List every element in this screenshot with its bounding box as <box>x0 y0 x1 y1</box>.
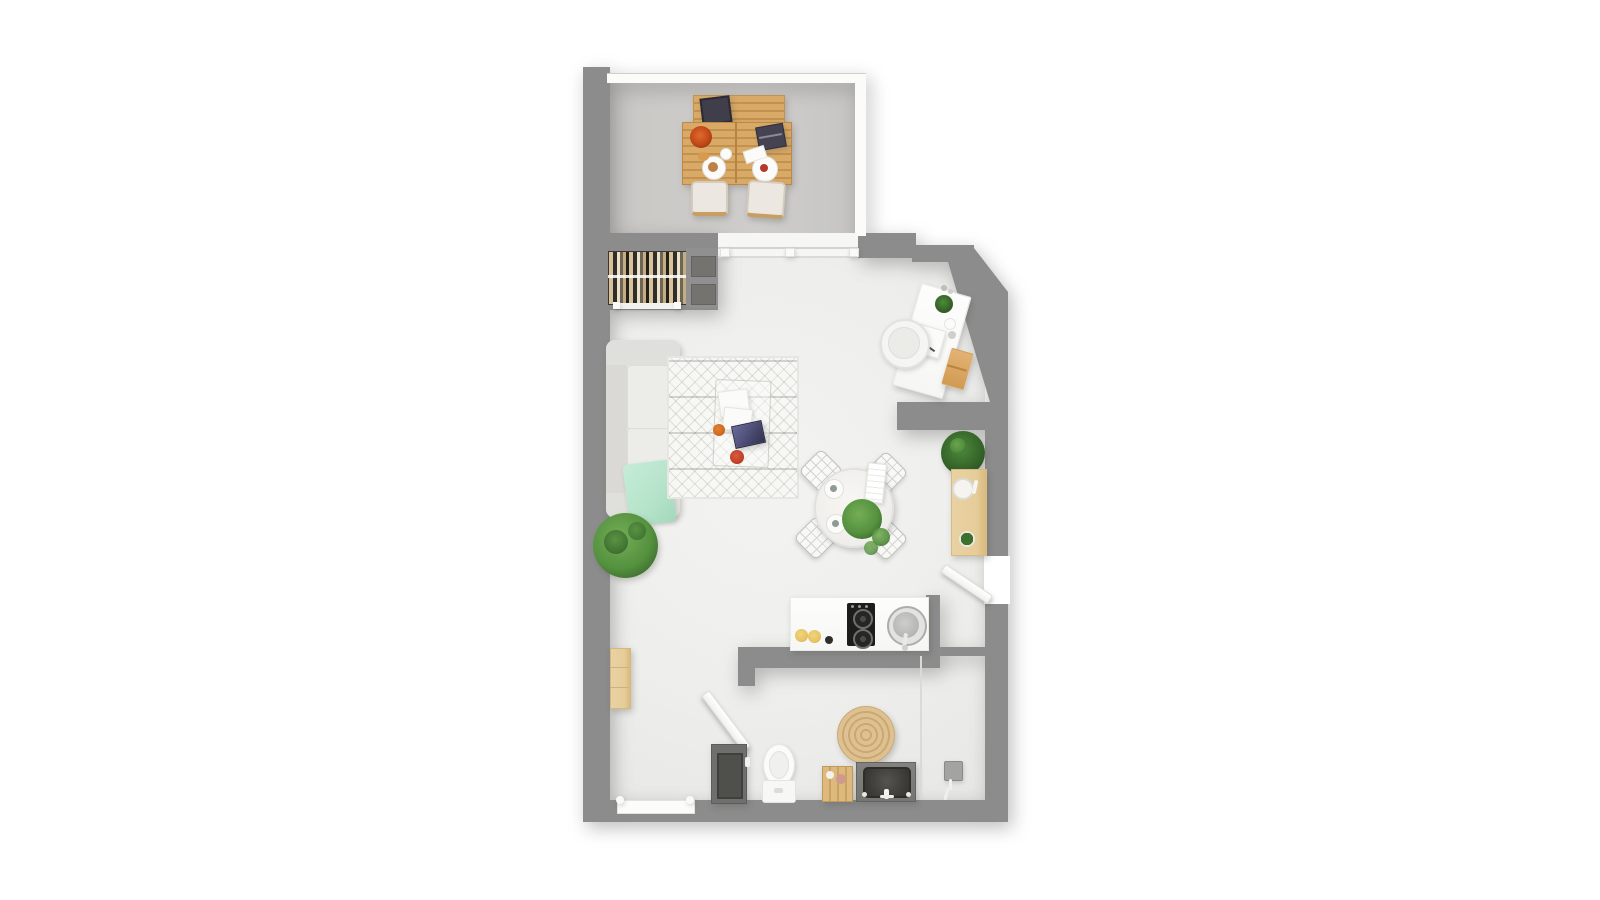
shower-hose <box>949 779 952 790</box>
desk-plant <box>935 295 953 313</box>
hallway-plant-highlight <box>950 438 966 454</box>
red-plant <box>690 126 712 148</box>
cooktop-control <box>865 605 868 608</box>
cooktop-control <box>851 605 854 608</box>
desk-mug <box>944 318 956 330</box>
outdoor-chair <box>691 181 728 216</box>
wardrobe-rail-bar <box>608 275 686 278</box>
wardrobe-shelf-box <box>691 284 716 305</box>
vanity-faucet-bar <box>880 795 894 798</box>
toilet-seat <box>769 751 789 779</box>
crate-bottle <box>826 771 834 779</box>
furniture-layer <box>0 0 1600 900</box>
desk-pebble <box>948 331 956 339</box>
orange-bowl <box>713 424 725 436</box>
coffee-cup <box>720 148 732 160</box>
entry-door <box>940 564 993 604</box>
cooktop-burner <box>853 629 873 649</box>
cooktop-burner <box>853 609 873 629</box>
wall-shelf <box>610 648 631 709</box>
food <box>760 164 768 172</box>
wardrobe-slide-track <box>615 303 681 309</box>
wardrobe-handle <box>613 302 620 309</box>
console-bowl <box>952 478 974 500</box>
red-bowl <box>730 450 744 464</box>
plate-food <box>830 485 837 492</box>
glass-partition <box>920 656 922 798</box>
wardrobe-handle <box>674 302 681 309</box>
lemon <box>795 629 808 642</box>
bathroom-door <box>701 690 751 752</box>
pepper-grinder <box>825 636 833 644</box>
desk-chair-seat <box>888 327 920 359</box>
cabinet-panel <box>717 753 743 799</box>
jute-rug <box>837 706 895 764</box>
outdoor-chair <box>746 180 786 220</box>
sofa-backrest <box>606 340 627 518</box>
plate-food <box>832 520 839 527</box>
flower-dots <box>941 285 947 291</box>
vanity-knob <box>906 792 911 797</box>
crate-flower <box>836 774 846 784</box>
flush-button <box>774 788 783 793</box>
wardrobe-shelf-box <box>691 256 716 277</box>
plant-sprig <box>864 541 878 555</box>
plant-leaf-cluster <box>604 530 628 554</box>
shelf-line <box>610 687 629 688</box>
vanity-knob <box>862 792 867 797</box>
shelf-line <box>610 667 629 668</box>
shower-hose <box>943 788 949 800</box>
croissant <box>698 152 709 161</box>
table-split-line <box>735 122 737 183</box>
floor-plan <box>0 0 1600 900</box>
flower-dots <box>948 289 953 294</box>
cabinet-handle <box>745 757 750 767</box>
faucet-base <box>902 645 908 651</box>
shower-mixer <box>944 761 963 781</box>
food <box>708 162 718 172</box>
plant-leaf-cluster <box>628 522 646 540</box>
console-plant-pot <box>959 531 975 547</box>
cooktop-control <box>858 605 861 608</box>
lemon <box>808 630 821 643</box>
wardrobe-clothes-rail <box>608 251 688 305</box>
